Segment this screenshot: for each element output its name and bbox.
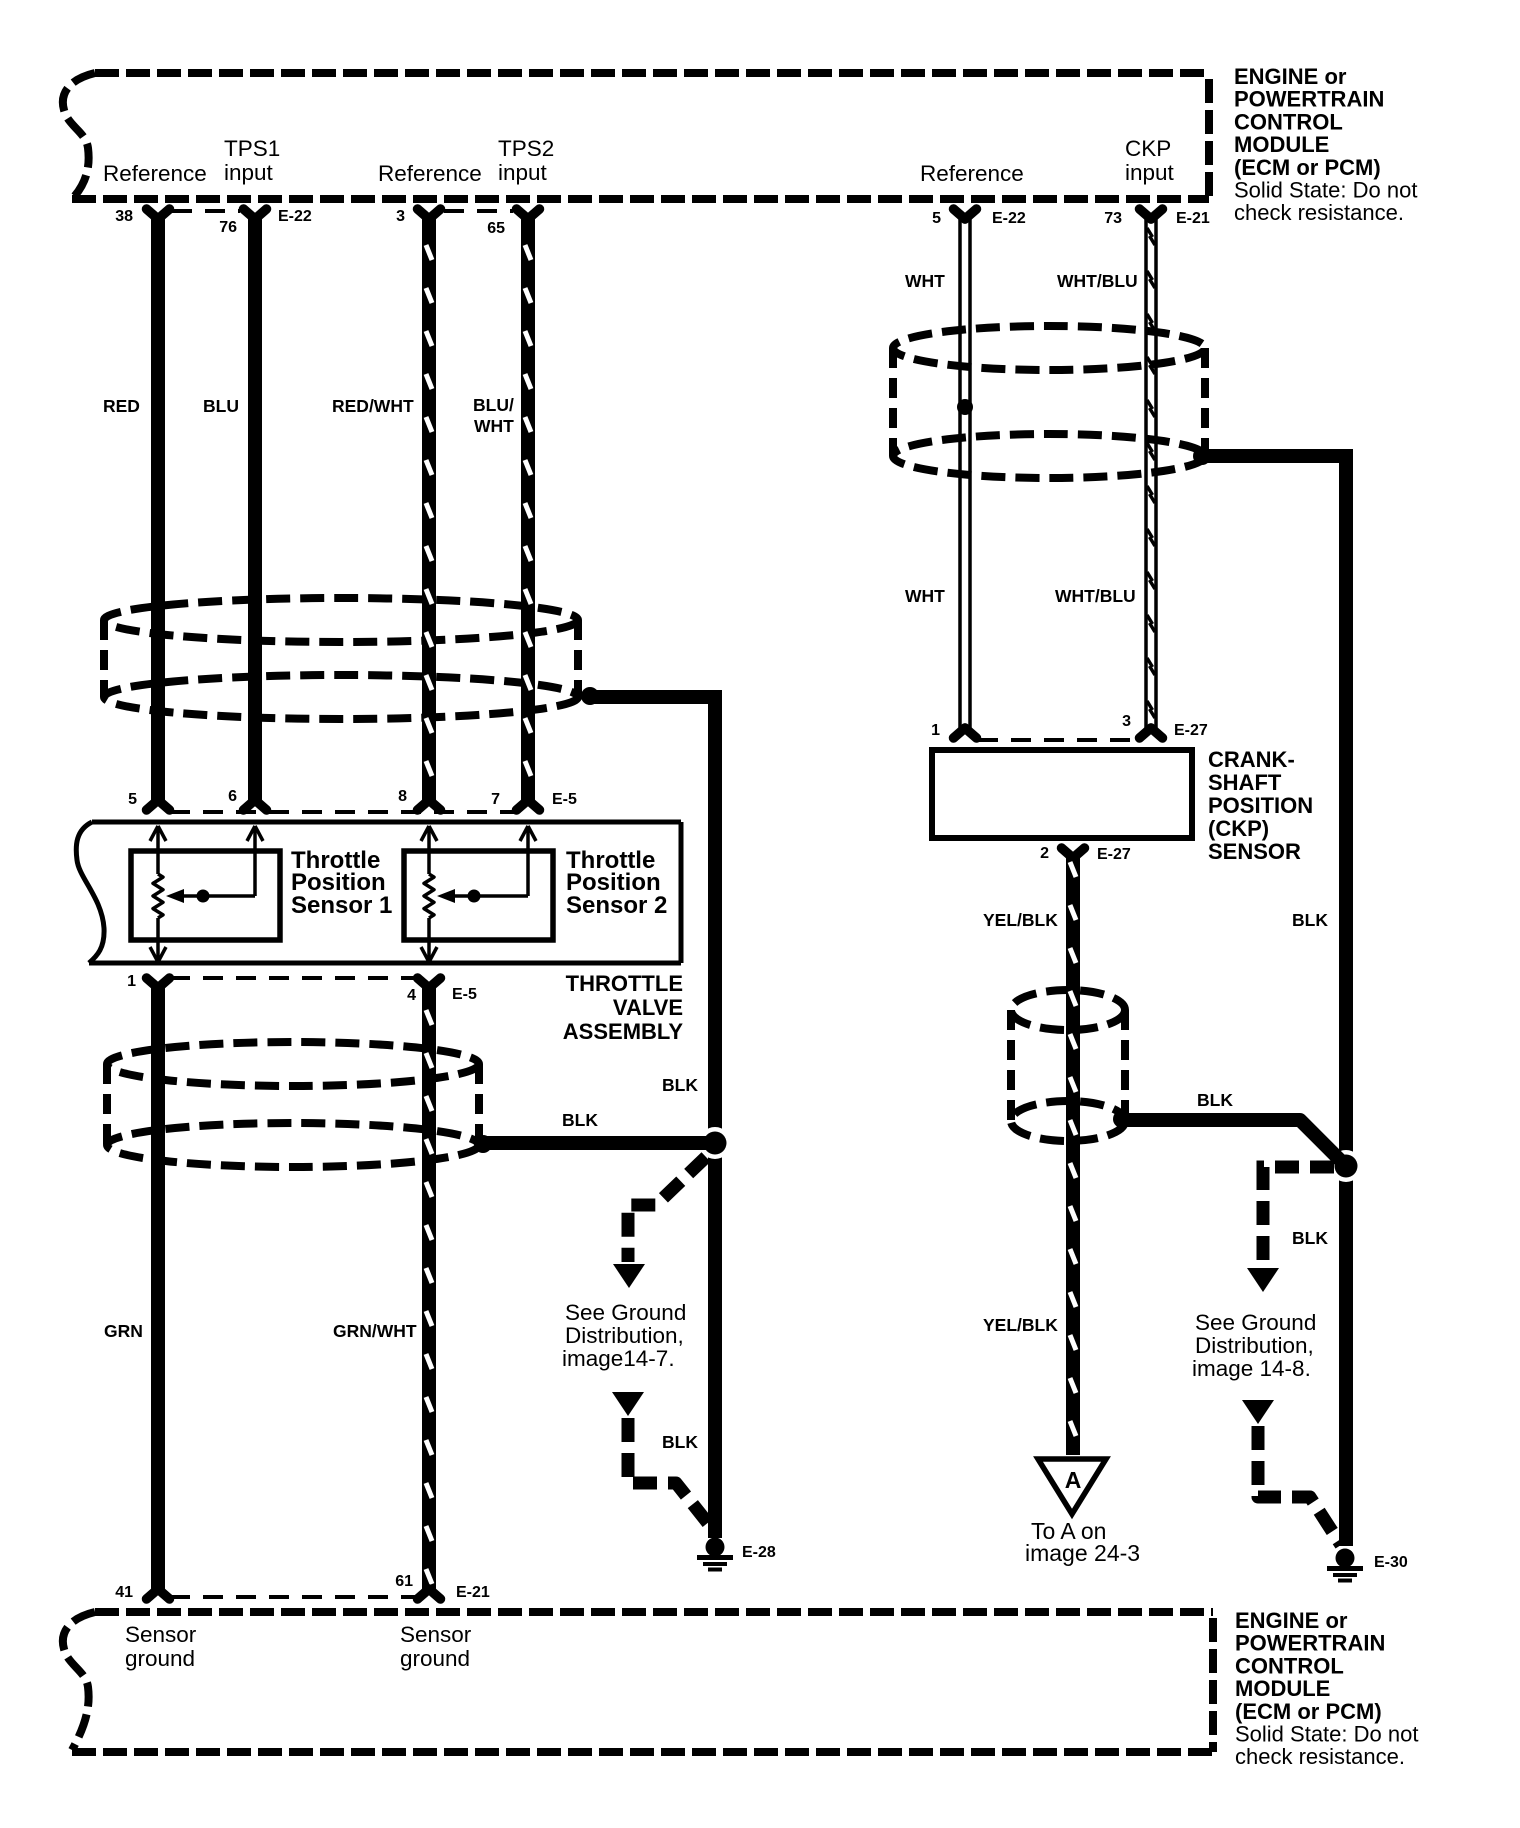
- svg-text:1: 1: [127, 973, 136, 990]
- svg-text:See Ground: See Ground: [1195, 1310, 1316, 1335]
- svg-text:BLK: BLK: [562, 1110, 598, 1130]
- svg-text:5: 5: [932, 210, 941, 227]
- svg-text:image 14-8.: image 14-8.: [1192, 1356, 1311, 1381]
- svg-text:POSITION: POSITION: [1208, 793, 1313, 818]
- svg-text:76: 76: [219, 219, 237, 236]
- svg-text:7: 7: [491, 791, 500, 808]
- svg-text:BLK: BLK: [1292, 1228, 1328, 1248]
- svg-text:CONTROL: CONTROL: [1234, 109, 1343, 134]
- svg-text:4: 4: [407, 987, 416, 1004]
- svg-text:Sensor: Sensor: [400, 1622, 472, 1647]
- svg-text:E-22: E-22: [278, 208, 312, 225]
- svg-text:MODULE: MODULE: [1234, 132, 1329, 157]
- svg-text:Sensor: Sensor: [125, 1622, 197, 1647]
- svg-text:8: 8: [398, 788, 407, 805]
- svg-text:E-5: E-5: [552, 791, 577, 808]
- svg-text:Solid State: Do not: Solid State: Do not: [1234, 178, 1417, 203]
- svg-text:E-30: E-30: [1374, 1554, 1408, 1571]
- svg-text:WHT/BLU: WHT/BLU: [1057, 271, 1138, 291]
- svg-text:THROTTLE: THROTTLE: [566, 971, 683, 996]
- svg-text:3: 3: [1122, 713, 1131, 730]
- svg-text:Distribution,: Distribution,: [565, 1323, 684, 1348]
- svg-text:E-5: E-5: [452, 986, 477, 1003]
- svg-text:E-22: E-22: [992, 210, 1026, 227]
- svg-text:61: 61: [395, 1573, 413, 1590]
- svg-text:WHT: WHT: [905, 586, 945, 606]
- svg-text:ENGINE or: ENGINE or: [1234, 64, 1347, 89]
- svg-text:(ECM or PCM): (ECM or PCM): [1234, 155, 1381, 180]
- svg-text:A: A: [1065, 1467, 1082, 1493]
- svg-text:Reference: Reference: [103, 161, 207, 186]
- svg-text:YEL/BLK: YEL/BLK: [983, 1315, 1058, 1335]
- svg-text:6: 6: [228, 788, 237, 805]
- svg-text:CONTROL: CONTROL: [1235, 1653, 1344, 1678]
- svg-text:Sensor 2: Sensor 2: [566, 892, 667, 919]
- svg-text:SHAFT: SHAFT: [1208, 770, 1282, 795]
- svg-text:38: 38: [115, 208, 133, 225]
- svg-text:GRN/WHT: GRN/WHT: [333, 1321, 417, 1341]
- svg-text:5: 5: [128, 791, 137, 808]
- svg-text:POWERTRAIN: POWERTRAIN: [1235, 1631, 1385, 1656]
- svg-text:input: input: [1125, 160, 1175, 185]
- svg-text:SENSOR: SENSOR: [1208, 839, 1301, 864]
- svg-text:TPS2: TPS2: [498, 136, 554, 161]
- svg-text:TPS1: TPS1: [224, 136, 280, 161]
- svg-text:CRANK-: CRANK-: [1208, 747, 1295, 772]
- svg-text:E-27: E-27: [1097, 846, 1131, 863]
- svg-text:ground: ground: [400, 1646, 470, 1671]
- svg-text:YEL/BLK: YEL/BLK: [983, 910, 1058, 930]
- svg-text:check resistance.: check resistance.: [1234, 200, 1404, 225]
- svg-text:WHT: WHT: [474, 416, 514, 436]
- svg-text:See Ground: See Ground: [565, 1300, 686, 1325]
- svg-text:BLU: BLU: [203, 396, 239, 416]
- svg-text:WHT: WHT: [905, 271, 945, 291]
- svg-text:ASSEMBLY: ASSEMBLY: [563, 1019, 684, 1044]
- svg-text:E-27: E-27: [1174, 722, 1208, 739]
- svg-text:image 24-3: image 24-3: [1025, 1540, 1140, 1566]
- svg-text:check resistance.: check resistance.: [1235, 1744, 1405, 1769]
- svg-text:E-21: E-21: [1176, 210, 1210, 227]
- svg-text:CKP: CKP: [1125, 136, 1171, 161]
- svg-text:ENGINE or: ENGINE or: [1235, 1608, 1348, 1633]
- svg-text:E-21: E-21: [456, 1584, 490, 1601]
- svg-text:image14-7.: image14-7.: [562, 1346, 675, 1371]
- svg-text:input: input: [498, 160, 548, 185]
- svg-text:Sensor 1: Sensor 1: [291, 892, 392, 919]
- svg-text:BLK: BLK: [1292, 910, 1328, 930]
- svg-text:2: 2: [1040, 845, 1049, 862]
- svg-text:WHT/BLU: WHT/BLU: [1055, 586, 1136, 606]
- svg-text:GRN: GRN: [104, 1321, 143, 1341]
- svg-text:POWERTRAIN: POWERTRAIN: [1234, 87, 1384, 112]
- svg-text:VALVE: VALVE: [613, 995, 683, 1020]
- svg-text:Distribution,: Distribution,: [1195, 1333, 1314, 1358]
- svg-text:73: 73: [1104, 210, 1122, 227]
- svg-text:Reference: Reference: [378, 161, 482, 186]
- svg-text:3: 3: [396, 208, 405, 225]
- svg-text:RED: RED: [103, 396, 140, 416]
- svg-text:RED/WHT: RED/WHT: [332, 396, 414, 416]
- svg-text:ground: ground: [125, 1646, 195, 1671]
- svg-text:BLK: BLK: [662, 1432, 698, 1452]
- svg-text:BLK: BLK: [662, 1075, 698, 1095]
- svg-text:41: 41: [115, 1584, 133, 1601]
- svg-text:Reference: Reference: [920, 161, 1024, 186]
- svg-text:(CKP): (CKP): [1208, 816, 1269, 841]
- svg-text:BLK: BLK: [1197, 1090, 1233, 1110]
- svg-text:65: 65: [487, 220, 505, 237]
- svg-text:E-28: E-28: [742, 1544, 776, 1561]
- svg-text:1: 1: [931, 722, 940, 739]
- svg-text:Solid State: Do not: Solid State: Do not: [1235, 1722, 1418, 1747]
- svg-text:BLU/: BLU/: [473, 395, 514, 415]
- svg-text:(ECM or PCM): (ECM or PCM): [1235, 1699, 1382, 1724]
- svg-text:input: input: [224, 160, 274, 185]
- svg-text:MODULE: MODULE: [1235, 1676, 1330, 1701]
